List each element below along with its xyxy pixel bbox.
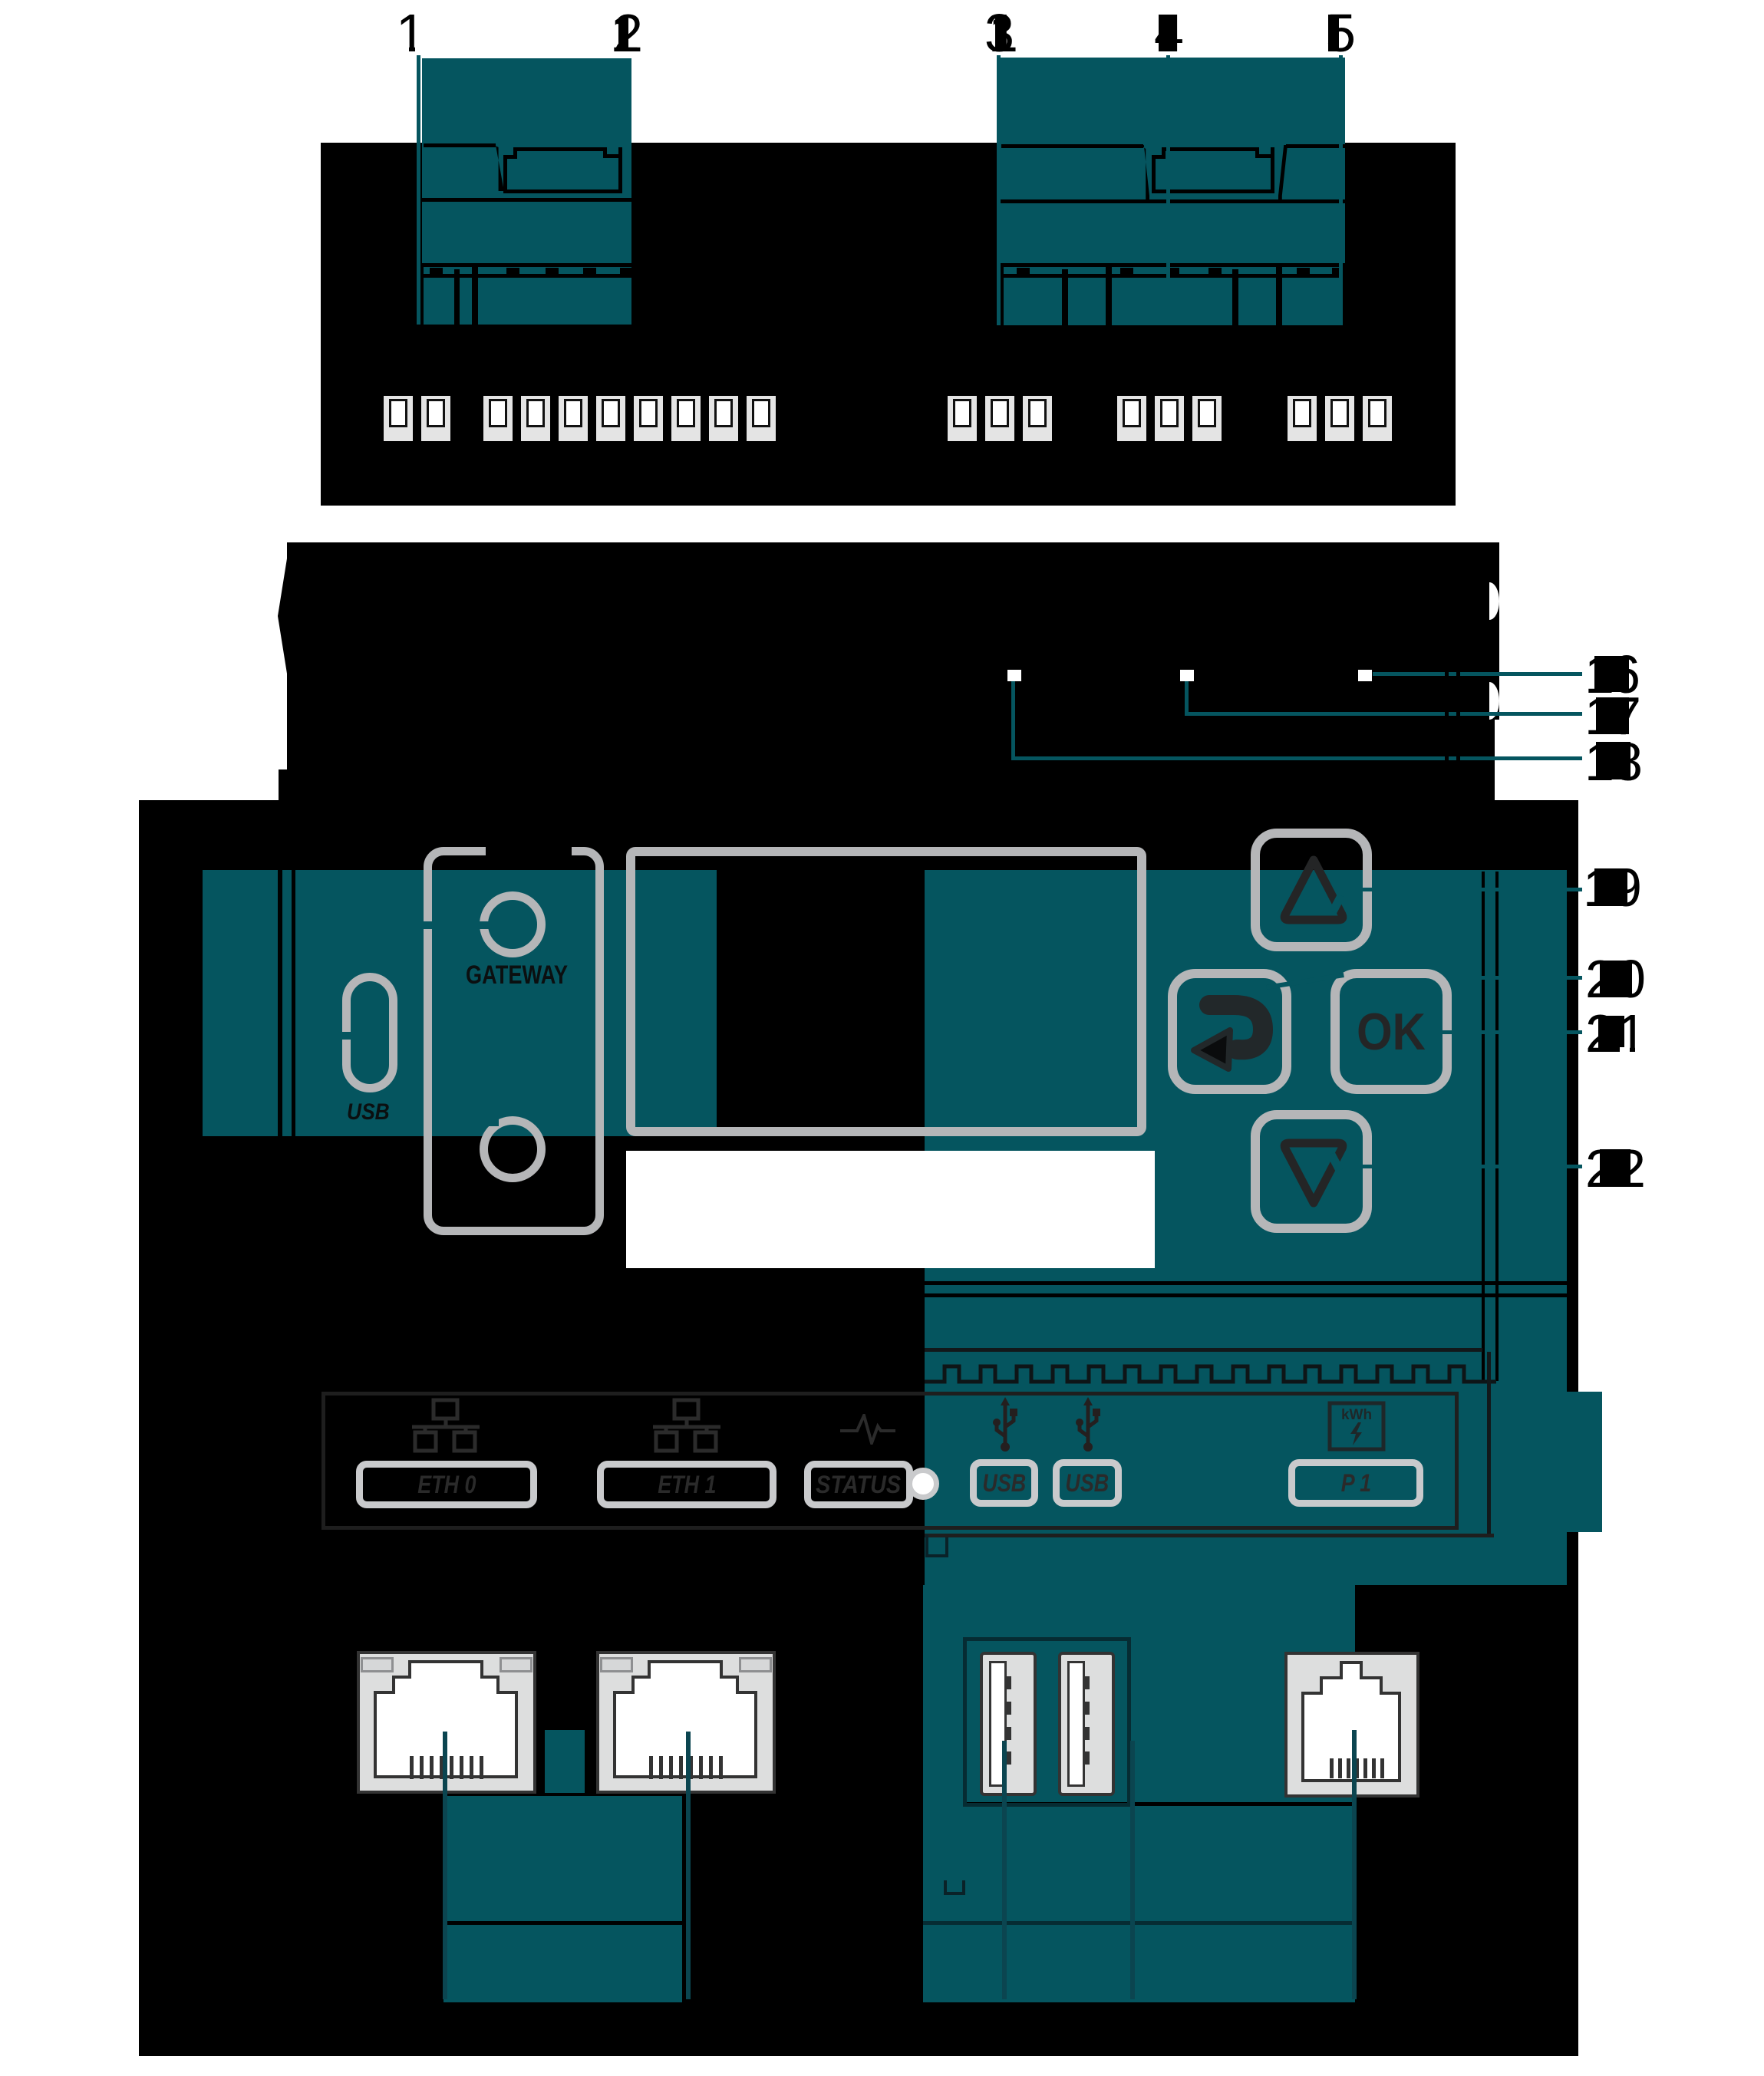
svg-text:kWh: kWh xyxy=(1341,1407,1372,1423)
